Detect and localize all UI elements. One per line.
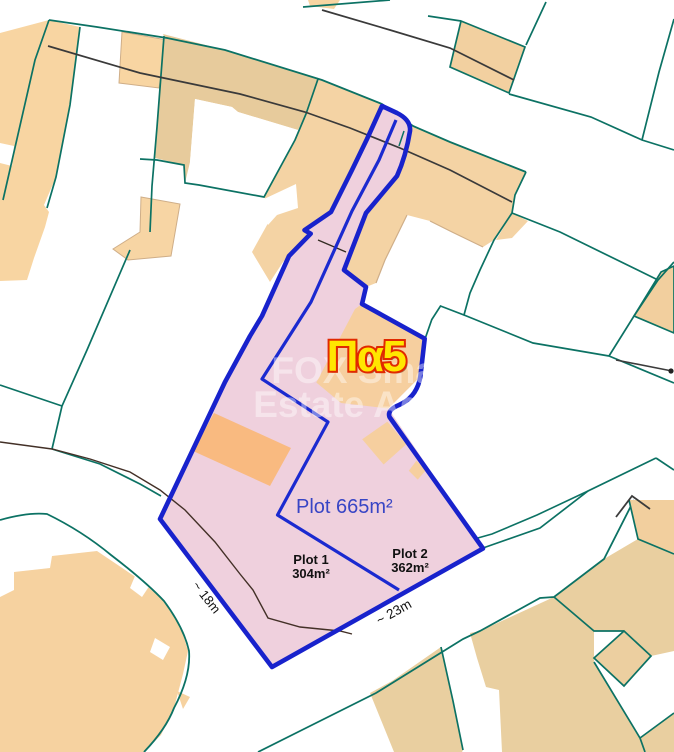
svg-text:Plot 665m²: Plot 665m² <box>296 496 393 518</box>
svg-text:Estate Agency: Estate Agency <box>253 384 507 425</box>
svg-text:Πα5: Πα5 <box>327 332 407 381</box>
svg-text:362m²: 362m² <box>391 560 429 575</box>
svg-text:304m²: 304m² <box>292 566 330 581</box>
svg-text:Plot 2: Plot 2 <box>392 546 427 561</box>
svg-text:Plot 1: Plot 1 <box>293 552 328 567</box>
